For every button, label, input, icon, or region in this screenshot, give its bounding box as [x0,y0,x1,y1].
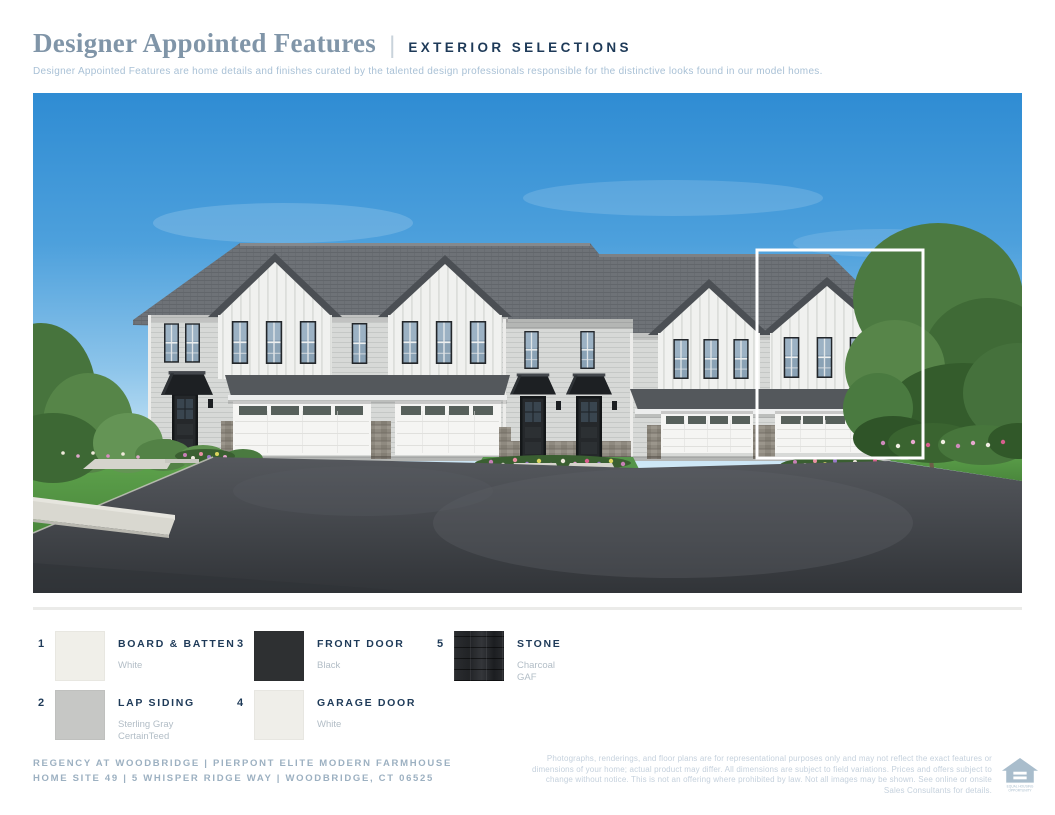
front-door-swatch [254,631,304,681]
legend-label: FRONT DOOR [317,631,405,650]
footer-community-info: REGENCY AT WOODBRIDGE | PIERPONT ELITE M… [33,757,452,786]
legend-label: LAP SIDING [118,690,195,709]
trees-right [843,223,1022,491]
eho-text-line2: OPPORTUNITY [1008,789,1032,793]
legend-item-board-batten: 1 BOARD & BATTEN White [38,631,236,681]
stone-swatch [454,631,504,681]
porch-lantern [556,401,561,410]
garage-door-swatch [254,690,304,740]
legend-detail-2: CertainTeed [118,731,195,743]
legend-detail: Black [317,660,405,672]
legal-disclaimer: Photographs, renderings, and floor plans… [528,754,992,796]
garage-door-1 [233,401,371,455]
address-line: HOME SITE 49 | 5 WHISPER RIDGE WAY | WOO… [33,772,452,787]
legend-item-lap-siding: 2 LAP SIDING Sterling Gray CertainTeed [38,690,195,743]
section-divider [33,607,1022,610]
legend-item-stone: 5 STONE Charcoal GAF [437,631,561,684]
garage-door-2 [395,401,501,455]
legend-number: 4 [237,690,249,740]
legend-detail: White [317,719,416,731]
community-line: REGENCY AT WOODBRIDGE | PIERPONT ELITE M… [33,757,452,772]
legend-number: 1 [38,631,50,681]
legend-item-garage-door: 4 GARAGE DOOR White [237,690,416,740]
porch-lantern [208,399,213,408]
townhouse-building [133,243,917,465]
header-description: Designer Appointed Features are home det… [33,66,1023,77]
porch-lantern [612,401,617,410]
legend-number: 2 [38,690,50,743]
legend-label: GARAGE DOOR [317,690,416,709]
board-batten-swatch [55,631,105,681]
legend-number: 5 [437,631,449,684]
driveway [33,457,1022,593]
legend-item-front-door: 3 FRONT DOOR Black [237,631,405,681]
legend-detail: Sterling Gray [118,719,195,731]
legend-detail: White [118,660,236,672]
legend-detail-2: GAF [517,672,561,684]
exterior-rendering [33,93,1022,593]
legend-label: BOARD & BATTEN [118,631,236,650]
section-label: EXTERIOR SELECTIONS [408,40,632,55]
legend-detail: Charcoal [517,660,561,672]
header: Designer Appointed Features | EXTERIOR S… [33,28,1023,77]
equal-housing-opportunity-logo: EQUAL HOUSING OPPORTUNITY [1001,757,1039,795]
garage-door-3 [661,411,753,453]
page-title: Designer Appointed Features [33,28,376,59]
pent-roof-left [225,375,510,404]
rendering-svg [33,93,1022,593]
title-row: Designer Appointed Features | EXTERIOR S… [33,28,1023,59]
legend-number: 3 [237,631,249,681]
legend-label: STONE [517,631,561,650]
title-divider: | [389,32,395,60]
lap-siding-swatch [55,690,105,740]
